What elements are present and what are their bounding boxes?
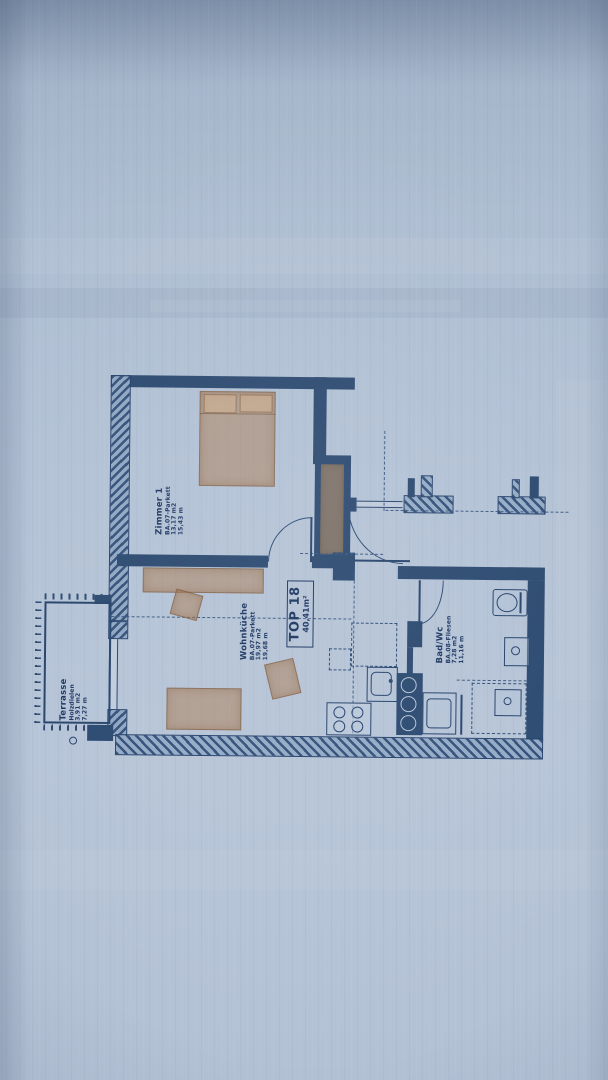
washing-machine-drum xyxy=(426,698,451,728)
bath-sink-basin xyxy=(511,646,520,655)
terrace-drain xyxy=(69,737,77,745)
upper-cabinet-dashed xyxy=(351,623,397,667)
duct-column-infill xyxy=(320,464,344,554)
kitchen-sink-basin xyxy=(371,672,392,696)
terrace-railing-top xyxy=(45,593,112,600)
appliance-circle xyxy=(400,696,416,712)
photographed-floor-plan-page: Zimmer 1 BA.07-Parkett 13,17 m2 15,43 m … xyxy=(0,0,608,1080)
room-label-zimmer1: Zimmer 1 BA.07-Parkett 13,17 m2 15,43 m xyxy=(155,486,185,535)
shower-drain xyxy=(503,697,511,705)
door-arc-entrance xyxy=(347,503,404,564)
toilet-cistern-line xyxy=(519,592,521,613)
corridor-centerline-vertical xyxy=(384,431,386,511)
terrace-railing-left xyxy=(34,601,41,723)
room-label-terrasse: Terrasse Holzdielen 3,91 m2 7,27 m xyxy=(59,678,89,720)
appliance-circle xyxy=(401,677,417,693)
terrace-railing-bottom xyxy=(43,724,110,731)
bed-pillow xyxy=(240,394,273,412)
room-label-wohnkueche: Wohnküche BA.07-Parkett 19,97 m2 19,68 m xyxy=(240,603,270,661)
stove-burner xyxy=(351,721,363,733)
bed-pillow xyxy=(204,394,237,413)
wall-bottom-hatched xyxy=(115,734,543,759)
bath-dashed-line xyxy=(457,680,527,682)
corridor-wall-stub xyxy=(421,475,433,497)
appliance-circle xyxy=(400,715,416,731)
bath-divider-line xyxy=(460,695,462,735)
stove-burner xyxy=(351,707,363,719)
sideboard xyxy=(143,567,264,593)
corridor-wall-stub xyxy=(408,478,415,497)
armchair xyxy=(264,658,302,700)
room-perimeter: 7,27 m xyxy=(82,679,89,721)
room-perimeter: 19,68 m xyxy=(263,603,270,660)
room-perimeter: 11,16 m xyxy=(459,616,466,664)
upper-cabinet-dashed xyxy=(329,648,351,670)
corridor-wall-stub xyxy=(512,479,520,498)
unit-label-box: TOP 18 40,41m² xyxy=(286,580,314,647)
unit-area: 40,41m² xyxy=(302,586,311,641)
floor-plan: Zimmer 1 BA.07-Parkett 13,17 m2 15,43 m … xyxy=(0,0,608,1080)
door-arc-zimmer1 xyxy=(268,517,312,562)
toilet-bowl xyxy=(496,593,517,612)
stove xyxy=(326,702,371,735)
stove-burner xyxy=(333,720,345,732)
bath-duct xyxy=(407,621,422,647)
wall-zimmer1-bottom xyxy=(117,554,268,568)
wall-left-hatched xyxy=(108,375,131,621)
wall-zimmer1-right xyxy=(313,377,327,463)
unit-number: TOP 18 xyxy=(288,586,302,641)
corridor-wall-stub xyxy=(530,476,539,498)
couch xyxy=(166,688,241,731)
kitchen-faucet xyxy=(389,679,393,683)
kitchen-tall-unit xyxy=(396,673,423,735)
livingroom-dashed-line xyxy=(111,616,351,620)
stove-burner xyxy=(333,706,345,718)
wall-bath-top xyxy=(398,566,545,581)
room-perimeter: 15,43 m xyxy=(178,486,185,535)
room-label-badwc: Bad/Wc BA.08-Fliesen 7,28 m2 11,16 m xyxy=(436,615,466,663)
